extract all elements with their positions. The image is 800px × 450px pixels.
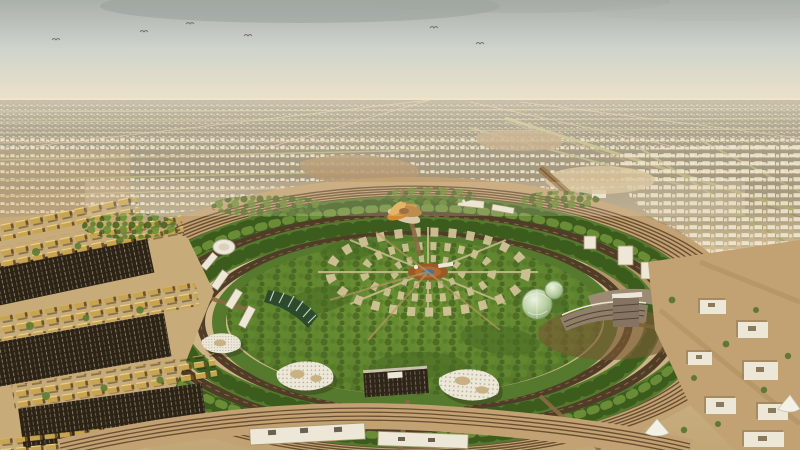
parking-building-south <box>363 366 429 397</box>
glass-dome-small <box>545 281 563 299</box>
aerial-render-stage <box>0 0 800 450</box>
campus-haze <box>85 182 745 216</box>
disc-building-core <box>219 243 230 250</box>
hq-tower <box>612 292 642 327</box>
aerial-render <box>0 0 800 450</box>
